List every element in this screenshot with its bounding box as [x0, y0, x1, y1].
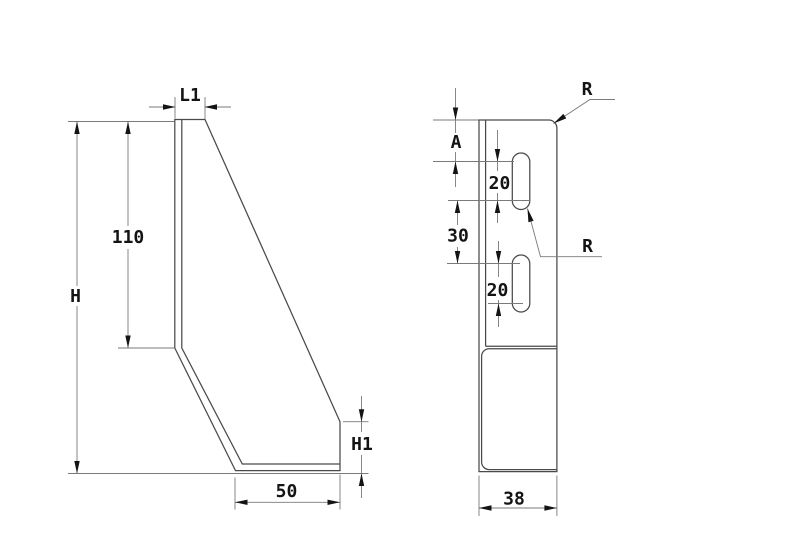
arrowhead — [453, 108, 458, 121]
right-view: A 20 30 20 38 R R — [433, 79, 615, 516]
arrowhead — [495, 201, 500, 214]
arrowhead — [554, 114, 567, 124]
dim-label-30: 30 — [447, 226, 469, 247]
slot-top — [512, 153, 530, 210]
arrowhead — [125, 336, 130, 349]
drawing-canvas: L1 H 110 H1 50 — [0, 0, 804, 557]
arrowhead — [496, 304, 501, 317]
arrowhead — [495, 149, 500, 162]
bracket-side-outline — [175, 120, 340, 471]
dim-label-20-bottom: 20 — [487, 280, 509, 301]
arrowhead — [453, 162, 458, 175]
arrowhead — [163, 104, 176, 109]
arrowhead — [496, 251, 501, 264]
dim-label-110: 110 — [112, 227, 145, 248]
dim-label-20-top: 20 — [489, 173, 511, 194]
bracket-side-inner-edge — [182, 120, 340, 465]
arrowhead — [544, 505, 557, 510]
arrowhead — [235, 500, 248, 505]
dim-label-a: A — [451, 132, 462, 153]
dim-label-h1: H1 — [351, 434, 373, 455]
arrowhead — [328, 500, 341, 505]
arrowhead — [455, 201, 460, 214]
dim-label-h: H — [70, 286, 81, 307]
arrowhead — [359, 474, 364, 487]
arrowhead — [205, 104, 218, 109]
leader-corner-radius — [554, 100, 616, 124]
arrowhead — [455, 251, 460, 264]
radius-label-corner: R — [582, 79, 593, 100]
arrowhead — [528, 209, 534, 223]
arrowhead — [74, 122, 79, 135]
arrowhead — [359, 409, 364, 422]
bent-flange-outline — [482, 349, 557, 470]
arrowhead — [74, 461, 79, 474]
dim-label-50: 50 — [276, 481, 298, 502]
arrowhead — [125, 122, 130, 135]
dim-label-38: 38 — [503, 489, 525, 510]
arrowhead — [479, 505, 492, 510]
technical-drawing-page: L1 H 110 H1 50 — [0, 0, 804, 557]
radius-label-slot: R — [582, 236, 593, 257]
left-view: L1 H 110 H1 50 — [68, 85, 373, 510]
dim-label-l1: L1 — [179, 85, 201, 106]
